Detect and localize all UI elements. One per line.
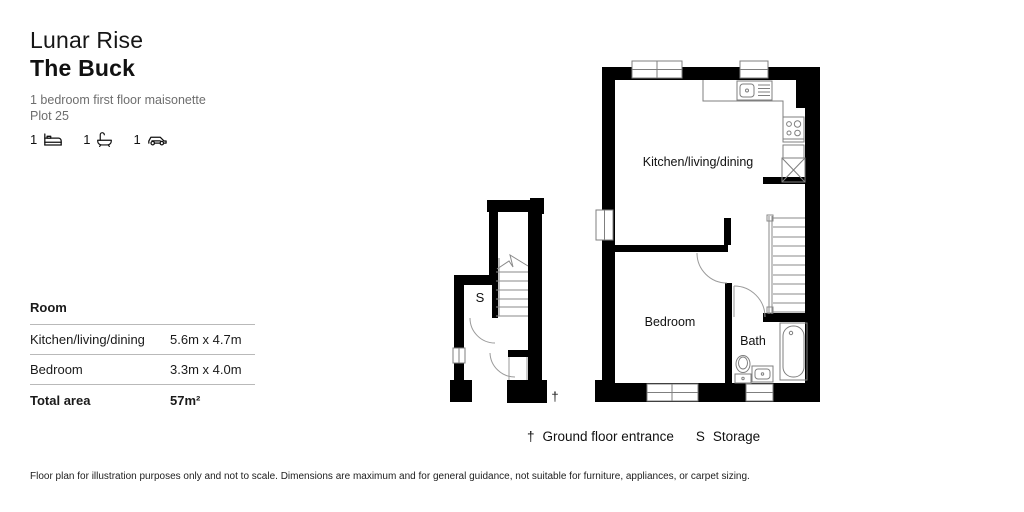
basin-icon (752, 366, 773, 382)
first-floor-stairs (767, 215, 805, 314)
table-row: Kitchen/living/dining 5.6m x 4.7m (30, 325, 255, 355)
table-row: Bedroom 3.3m x 4.0m (30, 355, 255, 385)
room-name: Bedroom (30, 362, 170, 377)
bath-door (734, 286, 765, 317)
kitchen-worktop (703, 80, 783, 117)
legend-entry-storage: S Storage (696, 429, 760, 444)
table-header: Room (30, 300, 255, 325)
development-name: Lunar Rise (30, 26, 206, 54)
bathrooms-count: 1 (83, 131, 113, 147)
plot-name: The Buck (30, 54, 206, 82)
window (596, 61, 773, 401)
header: Lunar Rise The Buck 1 bedroom first floo… (30, 26, 206, 124)
legend-storage-symbol: S (696, 429, 705, 444)
legend-entrance-label: Ground floor entrance (543, 429, 674, 444)
window (453, 348, 465, 363)
hob-icon (783, 117, 804, 142)
bed-icon (43, 132, 63, 147)
storage-door-arc (470, 318, 495, 343)
bedrooms-count-value: 1 (30, 132, 37, 147)
bath-icon (96, 131, 113, 147)
table-total-row: Total area 57m² (30, 385, 255, 408)
plot-number: Plot 25 (30, 108, 206, 124)
entrance-door (490, 353, 527, 380)
kitchen-label: Kitchen/living/dining (643, 155, 754, 169)
parking-count: 1 (133, 132, 166, 147)
bathtub-icon (780, 323, 807, 380)
room-dims: 5.6m x 4.7m (170, 332, 255, 347)
storage-label: S (476, 290, 485, 305)
bedroom-door-arc (697, 253, 727, 283)
legend-entry-entrance: † Ground floor entrance (527, 429, 674, 444)
total-area-label: Total area (30, 393, 170, 408)
total-area-value: 57m² (170, 393, 200, 408)
bathrooms-count-value: 1 (83, 132, 90, 147)
kitchen-unit (783, 145, 804, 158)
disclaimer-text: Floor plan for illustration purposes onl… (30, 470, 750, 483)
toilet-icon (735, 356, 751, 384)
car-icon (147, 133, 167, 146)
bedrooms-count: 1 (30, 132, 63, 147)
property-description: 1 bedroom first floor maisonette (30, 92, 206, 108)
legend-storage-label: Storage (713, 429, 760, 444)
entrance-dagger-mark: † (551, 389, 558, 404)
ground-floor-stairs (496, 255, 528, 316)
room-dimensions-table: Room Kitchen/living/dining 5.6m x 4.7m B… (30, 300, 255, 408)
bath-label: Bath (740, 334, 766, 348)
parking-count-value: 1 (133, 132, 140, 147)
plan-legend: † Ground floor entrance S Storage (527, 429, 760, 444)
room-name: Kitchen/living/dining (30, 332, 170, 347)
first-floor-plan: Kitchen/living/dining Bedroom Bath (595, 61, 820, 402)
feature-summary: 1 1 1 (30, 131, 167, 147)
floorplan-page: Lunar Rise The Buck 1 bedroom first floo… (0, 0, 1024, 512)
room-dims: 3.3m x 4.0m (170, 362, 255, 377)
ground-floor-plan: S † (450, 198, 559, 404)
floor-plan-drawing: S † (440, 55, 830, 415)
legend-dagger-symbol: † (527, 429, 535, 444)
bedroom-label: Bedroom (645, 315, 696, 329)
sink-icon (737, 81, 772, 100)
